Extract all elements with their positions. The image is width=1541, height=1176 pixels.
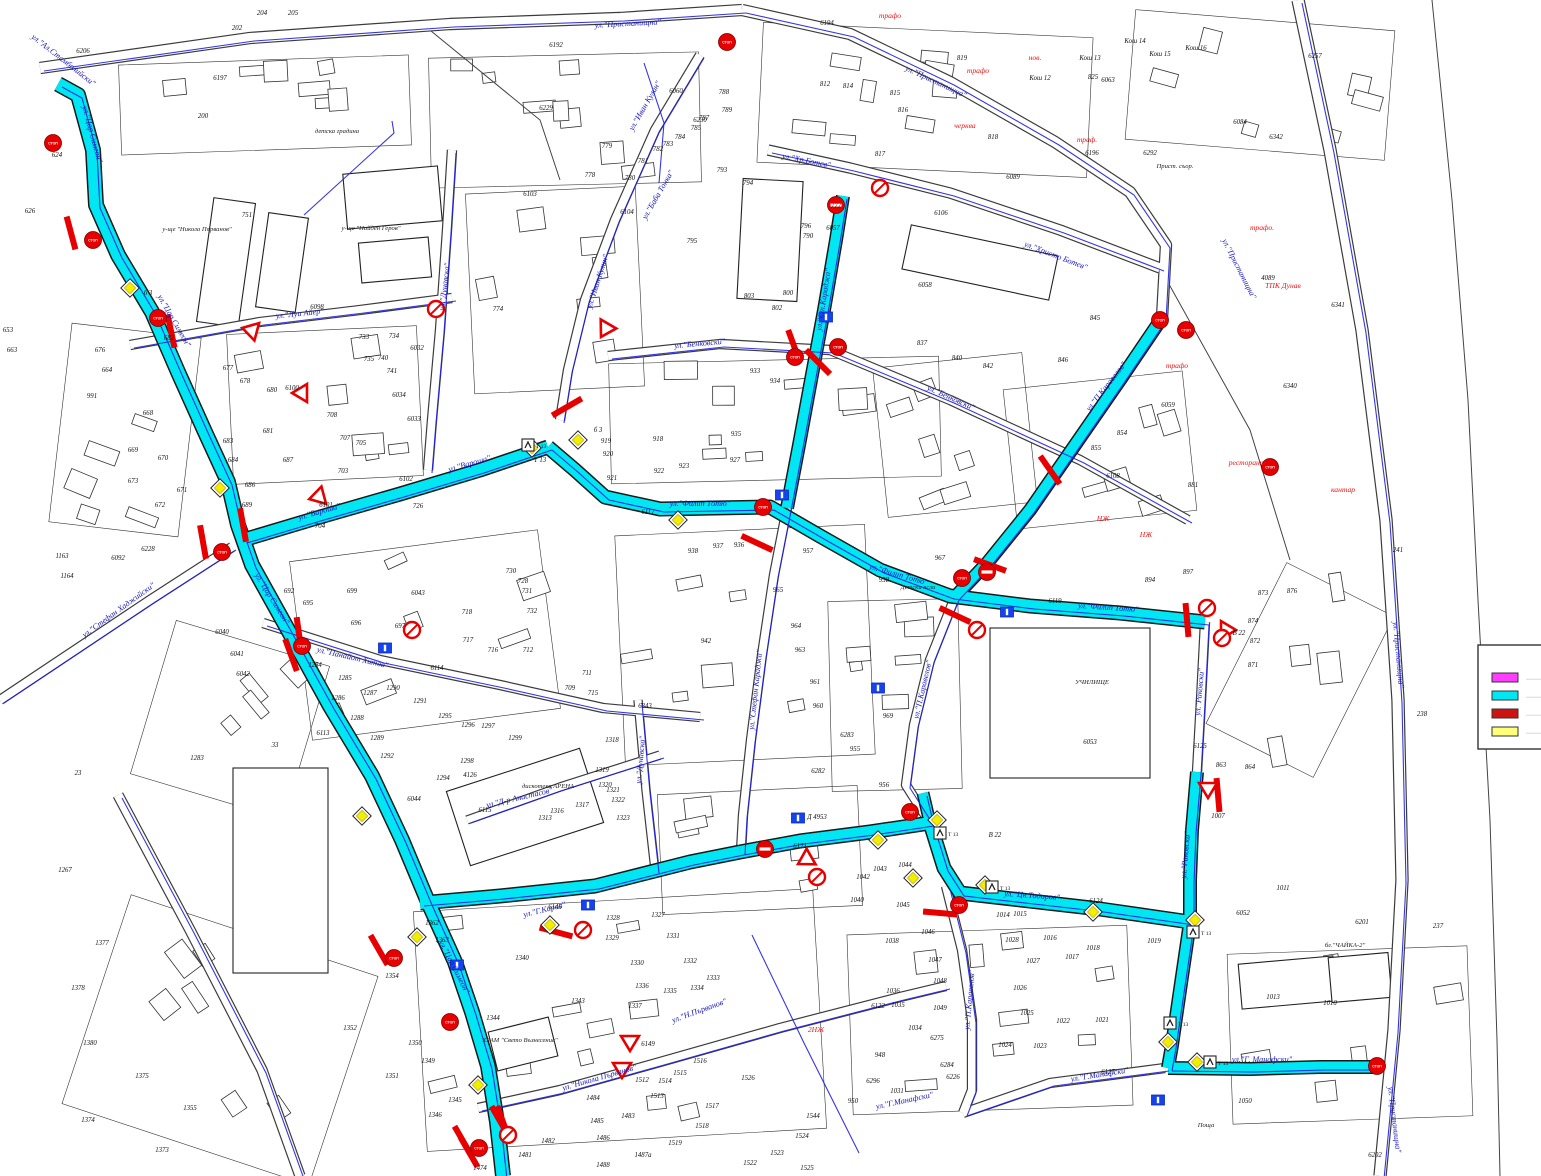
parcel-number: 927 — [730, 457, 741, 464]
parcel-number: 6033 — [407, 416, 421, 423]
info-sign-icon — [776, 490, 789, 500]
building — [1290, 644, 1311, 666]
parcel-number: 663 — [7, 347, 18, 354]
parcel-number: 677 — [223, 365, 234, 372]
parcel-number: 728 — [518, 578, 529, 585]
parcel-number: 1334 — [690, 985, 704, 992]
parcel-number: 1013 — [1266, 994, 1280, 1001]
parcel-number: Т 13 — [534, 457, 547, 464]
parcel-number: 1482 — [541, 1138, 555, 1145]
parcel-number: 672 — [155, 502, 166, 509]
building — [1317, 651, 1343, 685]
legend-cyan-swatch — [1492, 691, 1518, 700]
parcel-number: 819 — [957, 55, 968, 62]
parcel-number: 1007 — [1211, 813, 1225, 820]
parcel-number: 795 — [687, 238, 698, 245]
stop-sign-icon: СТОП — [1369, 1058, 1386, 1075]
info-bar — [1157, 1097, 1159, 1103]
red-poi-label: ресторант — [1228, 458, 1266, 467]
parcel-number: 1028 — [1005, 937, 1019, 944]
stop-sign-icon: СТОП — [442, 1014, 459, 1031]
parcel-number: 1016 — [1043, 935, 1057, 942]
building — [327, 384, 348, 405]
legend-item-label: ············· — [1526, 695, 1541, 701]
parcel-number: 33 — [271, 742, 279, 749]
parcel-number: 1512 — [635, 1077, 649, 1084]
red-poi-label: траф. — [1077, 135, 1097, 144]
parcel-number: 711 — [582, 670, 592, 677]
parcel-number: 815 — [890, 90, 901, 97]
parcel-number: 6113 — [316, 730, 330, 737]
parcel-number: 1522 — [743, 1160, 757, 1167]
parcel-number: 965 — [773, 587, 784, 594]
parcel-number: 692 — [284, 588, 295, 595]
building — [578, 1049, 594, 1066]
parcel-number: 1299 — [508, 735, 522, 742]
info-sign-icon — [1001, 607, 1014, 617]
parcel-number: 1023 — [1033, 1043, 1047, 1050]
parcel-number: 816 — [898, 107, 909, 114]
parcel-number: 845 — [1090, 315, 1101, 322]
parcel-number: 1034 — [908, 1025, 922, 1032]
parcel-number: 703 — [338, 468, 349, 475]
parcel-number: 1163 — [55, 553, 69, 560]
parcel-number: 794 — [743, 180, 754, 187]
parcel-number: 1287 — [363, 690, 377, 697]
red-poi-label: трафо. — [1250, 223, 1274, 232]
stop-sign-icon: СТОП — [951, 897, 968, 914]
parcel-number: 935 — [731, 431, 742, 438]
big-building — [737, 179, 803, 302]
parcel-number: 673 — [128, 478, 139, 485]
parcel-number: 812 — [820, 81, 831, 88]
parcel-number: 740 — [378, 355, 389, 362]
crosswalk-label: Т 13 — [1218, 1061, 1228, 1067]
parcel-number: 1295 — [438, 713, 452, 720]
parcel-number: 1021 — [1095, 1017, 1109, 1024]
parcel-number: 1036 — [886, 988, 900, 995]
parcel-number: 1043 — [873, 866, 887, 873]
parcel-number: 803 — [744, 293, 755, 300]
parcel-number: 937 — [713, 543, 724, 550]
building — [895, 654, 921, 665]
stop-sign-icon: СТОП — [755, 499, 772, 516]
parcel-number: 934 — [770, 378, 781, 385]
parcel-number: 1333 — [706, 975, 720, 982]
parcel-number: 1321 — [606, 787, 620, 794]
parcel-number: 1474 — [473, 1165, 487, 1172]
parcel-number: 689 — [242, 502, 253, 509]
stop-sign-icon: СТОП — [45, 135, 62, 152]
parcel-number: 684 — [228, 457, 239, 464]
crosswalk-label: Т 13 — [536, 444, 546, 450]
stop-label: СТОП — [905, 810, 915, 814]
stop-sign-icon: СТОП — [471, 1140, 488, 1157]
parcel-number: 682 — [164, 335, 175, 342]
red-poi-label: 2НЖ — [808, 1025, 825, 1034]
stop-sign-icon: СТОП — [719, 34, 736, 51]
parcel-number: 1518 — [695, 1123, 709, 1130]
parcel-number: 871 — [1248, 662, 1258, 669]
parcel-number: 1286 — [331, 695, 345, 702]
parcel-number: 696 — [351, 620, 362, 627]
building — [553, 101, 569, 122]
parcel-number: 1045 — [896, 902, 910, 909]
building — [298, 81, 330, 97]
parcel-number: 1047 — [928, 957, 942, 964]
parcel-number: 802 — [772, 305, 783, 312]
parcel-number: 6104 — [620, 209, 634, 216]
parcel-number: 1362 — [425, 920, 439, 927]
parcel-number: 1316 — [550, 808, 564, 815]
parcel-number: 6053 — [1083, 739, 1097, 746]
parcel-number: 948 — [875, 1052, 886, 1059]
building — [788, 699, 806, 713]
poi-label: Поща — [1197, 1122, 1215, 1129]
parcel-number: 686 — [245, 482, 256, 489]
parcel-number: 23 — [75, 770, 82, 777]
stop-label: СТОП — [389, 956, 399, 960]
big-building — [1238, 956, 1337, 1009]
building — [709, 435, 721, 445]
parcel-number: 1019 — [1147, 938, 1161, 945]
parcel-number: 897 — [1183, 569, 1194, 576]
legend-yellow-swatch — [1492, 727, 1518, 736]
parcel-number: 1336 — [635, 983, 649, 990]
parcel-number: 1329 — [605, 935, 619, 942]
parcel-number: 1331 — [666, 933, 680, 940]
parcel-number: 778 — [585, 172, 596, 179]
parcel-number: 855 — [1091, 445, 1102, 452]
stop-label: СТОП — [1265, 465, 1275, 469]
poi-label: детска градина — [315, 128, 360, 135]
parcel-number: 1340 — [515, 955, 529, 962]
parcel-number: 1488 — [596, 1162, 610, 1169]
no-entry-bar — [760, 847, 771, 850]
parcel-number: 715 — [588, 690, 599, 697]
parcel-number: 1297 — [481, 723, 495, 730]
big-building — [1328, 952, 1392, 1002]
parcel-number: 6040 — [215, 629, 229, 636]
parcel-number: 1015 — [1013, 911, 1027, 918]
parcel-number: 1513 — [650, 1093, 664, 1100]
building — [517, 207, 546, 232]
parcel-number: 942 — [701, 638, 712, 645]
parcel-number: 704 — [315, 523, 326, 530]
parcel-number: 1317 — [575, 802, 589, 809]
parcel-number: Кош 15 — [1148, 51, 1171, 58]
parcel-number: 664 — [102, 367, 113, 374]
parcel-number: 238 — [1417, 711, 1428, 718]
building — [846, 646, 871, 662]
parcel-number: 818 — [988, 134, 999, 141]
parcel-number: В 22 — [1233, 630, 1246, 637]
parcel-number: 6041 — [230, 651, 244, 658]
parcel-number: 923 — [679, 463, 690, 470]
stop-sign-icon: СТОП — [85, 232, 102, 249]
legend-item-label: ············· — [1526, 731, 1541, 737]
parcel-number: 1291 — [413, 698, 427, 705]
stop-label: СТОП — [88, 238, 98, 242]
parcel-number: 717 — [463, 637, 474, 644]
no-stopping-sign-icon — [809, 869, 825, 885]
building — [969, 944, 984, 967]
parcel-number: 785 — [691, 125, 702, 132]
info-sign-icon — [582, 900, 595, 910]
parcel-number: 1525 — [800, 1165, 814, 1172]
poi-label: УЧИЛИЩЕ — [1075, 679, 1109, 686]
parcel-number: 687 — [283, 457, 294, 464]
red-poi-label: трафо — [1166, 361, 1188, 370]
parcel-number: 1044 — [898, 862, 912, 869]
parcel-number: 6102 — [399, 476, 413, 483]
parcel-number: 6340 — [1283, 383, 1297, 390]
parcel-number: 1337 — [628, 1003, 642, 1010]
parcel-number: 894 — [1145, 577, 1156, 584]
building — [701, 663, 734, 688]
parcel-number: 964 — [791, 623, 802, 630]
parcel-number: 1035 — [891, 1002, 905, 1009]
parcel-number: 1267 — [58, 867, 72, 874]
parcel-number: 1327 — [651, 912, 665, 919]
parcel-number: 1519 — [668, 1140, 682, 1147]
parcel-number: 6194 — [820, 20, 834, 27]
parcel-number: 6057 — [826, 225, 840, 232]
parcel-number: 1313 — [538, 815, 552, 822]
parcel-number: 6103 — [523, 191, 537, 198]
poi-label: Прист. съор. — [1156, 163, 1194, 170]
big-building — [358, 237, 431, 283]
poi-label: Детски ясли — [900, 584, 937, 591]
parcel-number: 793 — [717, 167, 728, 174]
parcel-number: 814 — [843, 83, 854, 90]
parcel-number: 1516 — [693, 1058, 707, 1065]
parcel-number: 873 — [1258, 590, 1269, 597]
poi-label: ХРАМ "Свето Възнесение" — [481, 1037, 558, 1044]
parcel-number: 1289 — [370, 735, 384, 742]
crosswalk-label: Т 13 — [948, 832, 958, 838]
info-bar — [877, 685, 879, 691]
parcel-number: 1524 — [795, 1133, 809, 1140]
stop-sign-icon: СТОП — [787, 349, 804, 366]
parcel-number: 1048 — [933, 978, 947, 985]
parcel-number: 6257 — [1308, 53, 1322, 60]
building — [792, 119, 826, 136]
parcel-number: 991 — [87, 393, 97, 400]
parcel-number: 6201 — [1355, 919, 1369, 926]
parcel-number: 1373 — [155, 1147, 169, 1154]
parcel-number: 6197 — [213, 75, 227, 82]
legend-red-swatch — [1492, 709, 1518, 718]
parcel-number: 1375 — [135, 1073, 149, 1080]
big-building — [990, 628, 1150, 778]
parcel-number: 1018 — [1086, 945, 1100, 952]
parcel-number: 1323 — [616, 815, 630, 822]
big-building — [343, 166, 442, 229]
parcel-number: 1027 — [1026, 958, 1040, 965]
building — [702, 448, 726, 459]
parcel-number: б 3 — [594, 427, 603, 434]
stop-label: СТОП — [790, 355, 800, 359]
no-stopping-sign-icon — [1214, 630, 1230, 646]
parcel-number: 840 — [952, 355, 963, 362]
parcel-number: 781 — [638, 158, 648, 165]
no-stopping-sign-icon — [575, 922, 591, 938]
building — [882, 694, 909, 709]
parcel-number: 676 — [95, 347, 106, 354]
street-name-label: ул."Филип Тотю" — [669, 499, 731, 508]
building — [317, 59, 335, 76]
building — [729, 590, 746, 602]
parcel-number: 732 — [527, 608, 538, 615]
parcel-number: 653 — [3, 327, 14, 334]
parcel-number: 863 — [1216, 762, 1227, 769]
building — [388, 443, 409, 455]
parcel-number: 1284 — [308, 662, 322, 669]
parcel-number: 1040 — [850, 897, 864, 904]
parcel-number: 735 — [364, 356, 375, 363]
parcel-number: 6121 — [793, 843, 807, 850]
no-entry-sign-icon — [979, 564, 996, 581]
red-poi-label: НЖ — [1139, 530, 1153, 539]
parcel-number: 1517 — [705, 1103, 719, 1110]
building — [684, 796, 714, 820]
stop-sign-icon: СТОП — [830, 339, 847, 356]
parcel-number: 6059 — [1161, 402, 1175, 409]
stop-label: СТОП — [445, 1020, 455, 1024]
parcel-number: 1349 — [421, 1058, 435, 1065]
street-name-label: ул."Г. Манафски" — [1231, 1055, 1293, 1064]
parcel-number: 960 — [813, 703, 824, 710]
stop-label: СТОП — [1155, 318, 1165, 322]
parcel-number: 6206 — [76, 48, 90, 55]
red-poi-label: черква — [954, 121, 976, 130]
parcel-number: 961 — [810, 679, 820, 686]
info-sign-icon — [872, 683, 885, 693]
stop-sign-icon: СТОП — [294, 638, 311, 655]
parcel-number: 1290 — [386, 685, 400, 692]
red-poi-label: нов. — [1029, 53, 1042, 62]
building — [163, 78, 187, 96]
parcel-number: 796 — [801, 223, 812, 230]
parcel-number: 784 — [675, 134, 686, 141]
parcel-number: 936 — [734, 542, 745, 549]
parcel-number: 1350 — [408, 1040, 422, 1047]
parcel-number: 6149 — [641, 1041, 655, 1048]
parcel-number: 204 — [257, 10, 268, 17]
building — [475, 276, 497, 300]
parcel-number: 6052 — [1236, 910, 1250, 917]
building — [1315, 1080, 1338, 1102]
building — [1095, 966, 1114, 982]
parcel-number: 800 — [783, 290, 794, 297]
parcel-number: 1481 — [518, 1152, 532, 1159]
parcel-number: 938 — [688, 548, 699, 555]
parcel-number: 1049 — [933, 1005, 947, 1012]
parcel-number: 1042 — [856, 874, 870, 881]
parcel-number: 6063 — [1101, 77, 1115, 84]
parcel-number: 6228 — [141, 546, 155, 553]
stop-label: СТОП — [758, 505, 768, 509]
parcel-number: 1354 — [385, 973, 399, 980]
building — [860, 79, 877, 102]
parcel-number: 683 — [223, 438, 234, 445]
parcel-number: 6100 — [285, 385, 299, 392]
parcel-number: 1332 — [683, 958, 697, 965]
stop-label: СТОП — [957, 576, 967, 580]
info-sign-icon — [792, 813, 805, 823]
stop-label: СТОП — [153, 316, 163, 320]
stop-label: СТОП — [954, 903, 964, 907]
parcel-number: 1050 — [1238, 1098, 1252, 1105]
parcel-number: 1544 — [806, 1113, 820, 1120]
parcel-number: 6292 — [1143, 150, 1157, 157]
parcel-number: 6122 — [871, 1003, 885, 1010]
parcel-number: 1351 — [385, 1073, 399, 1080]
city-traffic-map[interactable]: Т 13Т 13Т 13Т 13Т 13Т 13СТОПСТОПСТОПСТОП… — [0, 0, 1541, 1176]
parcel-number: 790 — [803, 233, 814, 240]
parcel-number: 1046 — [921, 929, 935, 936]
parcel-number: 789 — [722, 107, 733, 114]
parcel-number: 1010 — [1323, 1000, 1337, 1007]
parcel-number: 670 — [158, 455, 169, 462]
parcel-number: 1346 — [428, 1112, 442, 1119]
parcel-number: 872 — [1250, 638, 1261, 645]
stop-label: СТОП — [833, 345, 843, 349]
parcel-number: 854 — [1117, 430, 1128, 437]
parcel-number: 6084 — [1233, 119, 1247, 126]
parcel-number: 6043 — [411, 590, 425, 597]
parcel-number: 6196 — [1085, 150, 1099, 157]
parcel-number: 1025 — [1020, 1010, 1034, 1017]
parcel-number: 782 — [653, 146, 664, 153]
parcel-number: 918 — [653, 436, 664, 443]
parcel-number: 709 — [565, 685, 576, 692]
parcel-number: 774 — [493, 306, 504, 313]
parcel-number: 1515 — [673, 1070, 687, 1077]
map-canvas[interactable]: Т 13Т 13Т 13Т 13Т 13Т 13СТОПСТОПСТОПСТОП… — [0, 0, 1541, 1176]
stop-sign-icon: СТОП — [214, 544, 231, 561]
parcel-number: 1283 — [190, 755, 204, 762]
legend-item-label: ············· — [1526, 677, 1541, 683]
stop-sign-icon: СТОП — [954, 570, 971, 587]
parcel-number: 731 — [522, 588, 532, 595]
building — [328, 88, 348, 111]
parcel-number: 708 — [327, 412, 338, 419]
crosswalk-label: Т 13 — [1201, 931, 1211, 937]
stop-label: СТОП — [1372, 1064, 1382, 1068]
building — [713, 386, 735, 405]
parcel-number: 716 — [488, 647, 499, 654]
info-bar — [781, 492, 783, 498]
parcel-number: 6275 — [930, 1035, 944, 1042]
parcel-number: 1355 — [183, 1105, 197, 1112]
parcel-number: 817 — [875, 151, 886, 158]
parcel-number: 751 — [242, 212, 252, 219]
parcel-number: 933 — [750, 368, 761, 375]
parcel-number: 6042 — [236, 671, 250, 678]
parcel-number: 6117 — [641, 509, 655, 516]
stop-sign-icon: СТОП — [386, 950, 403, 967]
parcel-number: 205 — [288, 10, 299, 17]
building — [905, 1079, 937, 1092]
parcel-number: 6125 — [1193, 743, 1207, 750]
red-poi-label: НЖ — [1096, 514, 1110, 523]
stop-sign-icon: СТОП — [1178, 322, 1195, 339]
parcel-number: 741 — [387, 368, 397, 375]
parcel-number: 6089 — [1006, 174, 1020, 181]
stop-label: СТОП — [1181, 328, 1191, 332]
